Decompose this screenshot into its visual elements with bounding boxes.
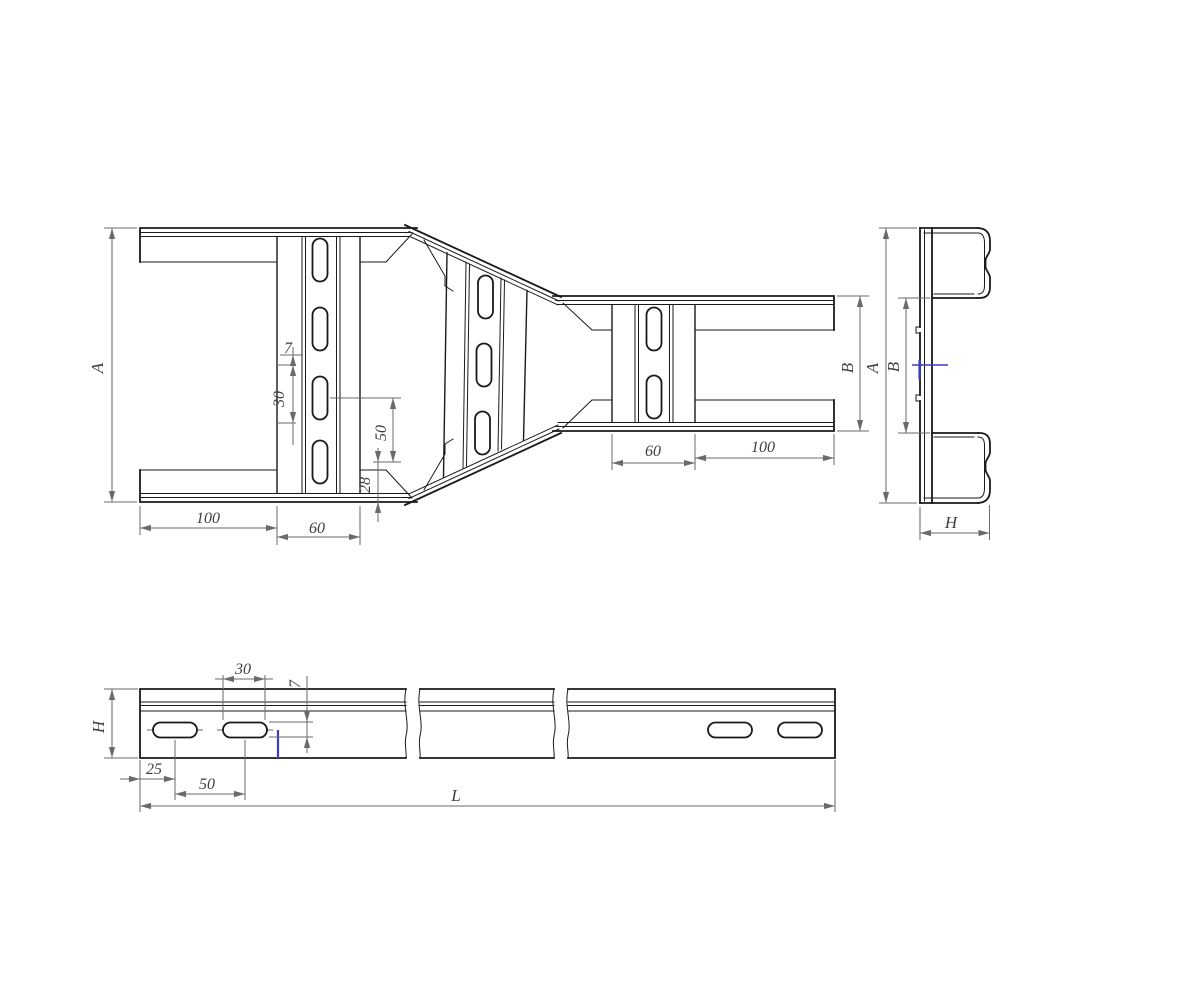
side-slots — [147, 723, 822, 738]
side-dim-7-label: 7 — [287, 679, 304, 688]
technical-drawing: A 7 30 50 28 100 60 — [0, 0, 1200, 1000]
plan-wide-rails-folds — [140, 233, 412, 498]
side-dim-50-label: 50 — [199, 776, 215, 793]
end-dimensions: A B H — [863, 228, 990, 540]
plan-view: A 7 30 50 28 100 60 — [88, 225, 869, 545]
side-dim-30-label: 30 — [234, 661, 251, 678]
slot — [313, 239, 328, 282]
side-dim-l-label: L — [450, 786, 460, 805]
side-dim-25-label: 25 — [146, 761, 162, 778]
slot — [223, 723, 267, 738]
end-channel-top — [920, 228, 978, 298]
plan-dim-50-label: 50 — [373, 425, 390, 441]
plan-dim-60-right-label: 60 — [645, 443, 661, 460]
plan-dim-100-right-label: 100 — [751, 439, 775, 456]
drawing-canvas: A 7 30 50 28 100 60 — [0, 0, 1200, 1000]
slot — [153, 723, 197, 738]
slot — [478, 276, 493, 319]
end-dim-b-label: B — [884, 361, 903, 372]
plan-dim-60-left-label: 60 — [309, 520, 325, 537]
slot — [647, 376, 662, 419]
end-channel-bottom — [920, 433, 978, 503]
side-dim-h-label: H — [89, 719, 108, 734]
side-view: H 30 7 25 50 L — [89, 661, 835, 812]
side-rail-folds — [140, 702, 835, 711]
plan-dim-a-label: A — [88, 362, 107, 374]
slot — [708, 723, 752, 738]
slot — [778, 723, 822, 738]
plan-dim-100-left-label: 100 — [196, 510, 220, 527]
plan-dim-30-label: 30 — [271, 391, 288, 408]
slot — [477, 344, 492, 387]
plan-rung-taper — [444, 253, 528, 477]
slot — [475, 412, 490, 455]
end-dim-h-label: H — [944, 513, 959, 532]
plan-narrow-rails-outline — [553, 296, 834, 431]
plan-dim-b-label: B — [838, 362, 857, 373]
slot — [313, 377, 328, 420]
slot — [313, 441, 328, 484]
plan-rung-narrow — [612, 305, 695, 422]
slot — [313, 308, 328, 351]
slot — [647, 308, 662, 351]
plan-dim-7-label: 7 — [284, 340, 293, 357]
end-dim-a-label: A — [863, 362, 882, 374]
plan-dim-28-label: 28 — [357, 477, 374, 493]
end-view: A B H — [863, 228, 990, 540]
side-break-lines — [405, 689, 569, 758]
